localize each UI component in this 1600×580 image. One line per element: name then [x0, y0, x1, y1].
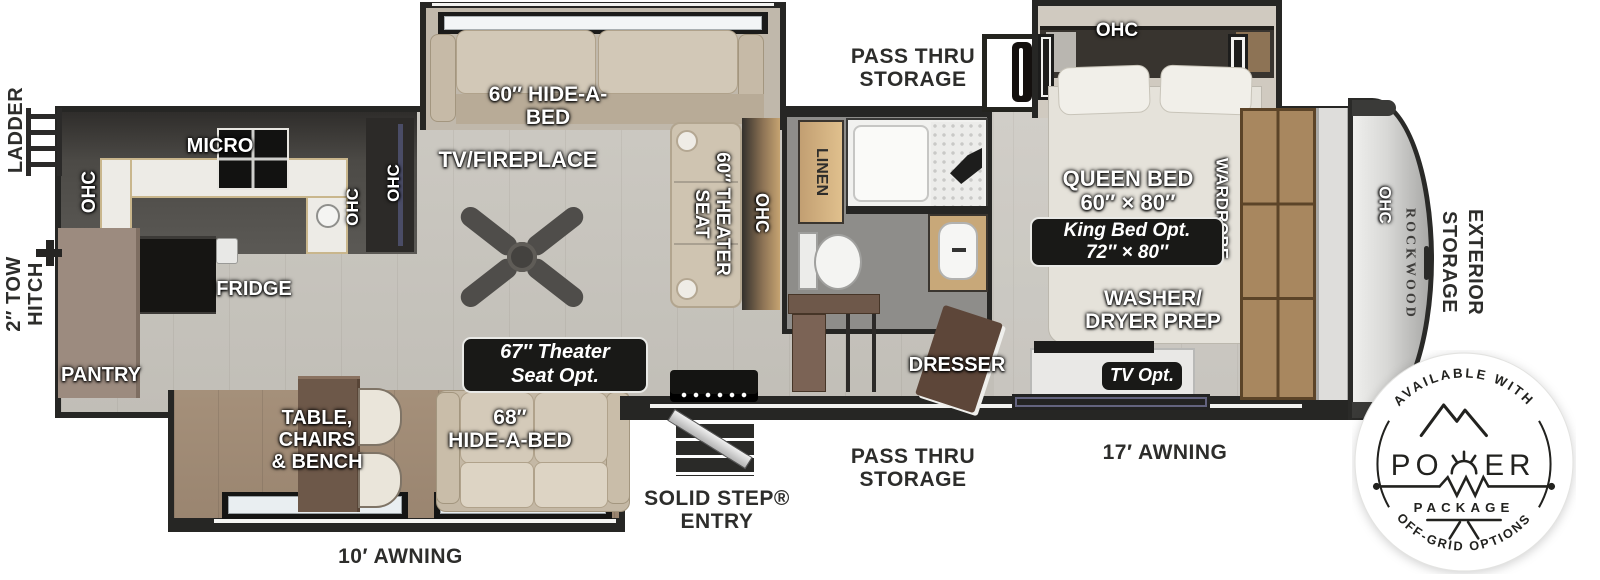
front-cap-corner: [1352, 100, 1396, 116]
pantry-label: PANTRY: [56, 362, 146, 388]
front-closet-mirror: [1316, 108, 1350, 400]
micro-label: MICRO: [180, 133, 260, 159]
pass-thru-door-slot: [1019, 48, 1023, 96]
tv-opt-badge: TV Opt.: [1100, 360, 1184, 392]
sofa-slideout-window-glass: [444, 16, 762, 30]
power-package-badge: AVAILABLE WITH PO ER PACKAGE OFF-GRID OP…: [1352, 350, 1576, 574]
awning-10-label: 10′ AWNING: [318, 544, 483, 570]
power-word-left: PO: [1391, 449, 1444, 482]
sofa68-seat-cushion: [534, 462, 608, 508]
king-bed-opt-badge: King Bed Opt. 72″ × 80″: [1030, 217, 1224, 267]
queen-bed-label: QUEEN BED 60″ × 80″: [1026, 164, 1230, 218]
bath-divider-wall: [846, 206, 988, 214]
ohc-label: OHC: [746, 168, 776, 258]
ladder-label: LADDER: [3, 82, 29, 178]
power-word-right: ER: [1484, 449, 1535, 482]
pass-thru-storage-top-label: PASS THRU STORAGE: [838, 42, 988, 94]
coffee-maker-icon: [216, 238, 238, 264]
tow-hitch-label: 2″ TOW HITCH: [0, 239, 51, 349]
dresser-label: DRESSER: [894, 352, 1020, 378]
floorplan-canvas: LADDER 2″ TOW HITCH PASS THRU STORAGE PA…: [0, 0, 1600, 580]
theater-seat-opt-badge: 67″ Theater Seat Opt.: [462, 337, 648, 393]
ohc-label: OHC: [342, 180, 364, 234]
theater-seat-60-label: 60″ THEATER SEAT: [687, 149, 735, 279]
steps-leg: [846, 314, 850, 392]
pass-thru-storage-bottom-label: PASS THRU STORAGE: [838, 442, 988, 494]
ohc-label: OHC: [383, 157, 405, 209]
washer-dryer-prep-label: WASHER/ DRYER PREP: [1068, 284, 1238, 336]
steps-leg: [872, 314, 876, 392]
sofa-slideout-awning-line: [432, 3, 774, 6]
cupholder-icon: [676, 278, 698, 300]
sofa68-seat-cushion: [460, 462, 534, 508]
tv-icon: [1034, 341, 1154, 353]
tv-flat-screen: [1012, 394, 1210, 410]
ohc-label: OHC: [1085, 18, 1149, 44]
linen-label: LINEN: [806, 128, 836, 216]
bedroom-steps-top: [788, 294, 880, 314]
bed-pillow: [1057, 64, 1151, 115]
bedroom-steps-panel: [792, 314, 826, 392]
sofa60-armrest-left: [430, 34, 456, 122]
kitchen-sink-icon: [316, 204, 340, 228]
awning-rail-10ft: [214, 519, 616, 523]
awning-17-label: 17′ AWNING: [1080, 440, 1250, 466]
ohc-label: OHC: [1370, 176, 1398, 234]
tv-fireplace-label: TV/FIREPLACE: [408, 146, 628, 174]
fridge-label: FRIDGE: [210, 276, 298, 302]
ladder-icon: [26, 108, 62, 176]
hide-a-bed-68-label: 68″ HIDE-A-BED: [428, 402, 592, 456]
ohc-label: OHC: [78, 164, 102, 220]
fridge-icon: [136, 236, 216, 314]
front-cap-handle: [1424, 246, 1429, 280]
exterior-storage-label: EXTERIOR STORAGE: [1434, 192, 1490, 332]
hide-a-bed-60-label: 60″ HIDE-A- BED: [466, 78, 630, 134]
ceiling-fan-icon: [455, 195, 590, 320]
toilet-icon: [814, 234, 862, 290]
table-chairs-bench-label: TABLE, CHAIRS & BENCH: [250, 400, 384, 480]
package-word: PACKAGE: [1414, 500, 1515, 515]
shower-tub: [853, 125, 929, 202]
griddle-knobs: [678, 392, 750, 398]
bed-pillow: [1159, 64, 1253, 115]
rockwood-brand: ROCKWOOD: [1398, 188, 1422, 340]
wardrobe-cabinet: [1240, 108, 1316, 400]
vanity-faucet-icon: [952, 248, 966, 252]
solid-step-entry-label: SOLID STEP® ENTRY: [628, 484, 806, 536]
